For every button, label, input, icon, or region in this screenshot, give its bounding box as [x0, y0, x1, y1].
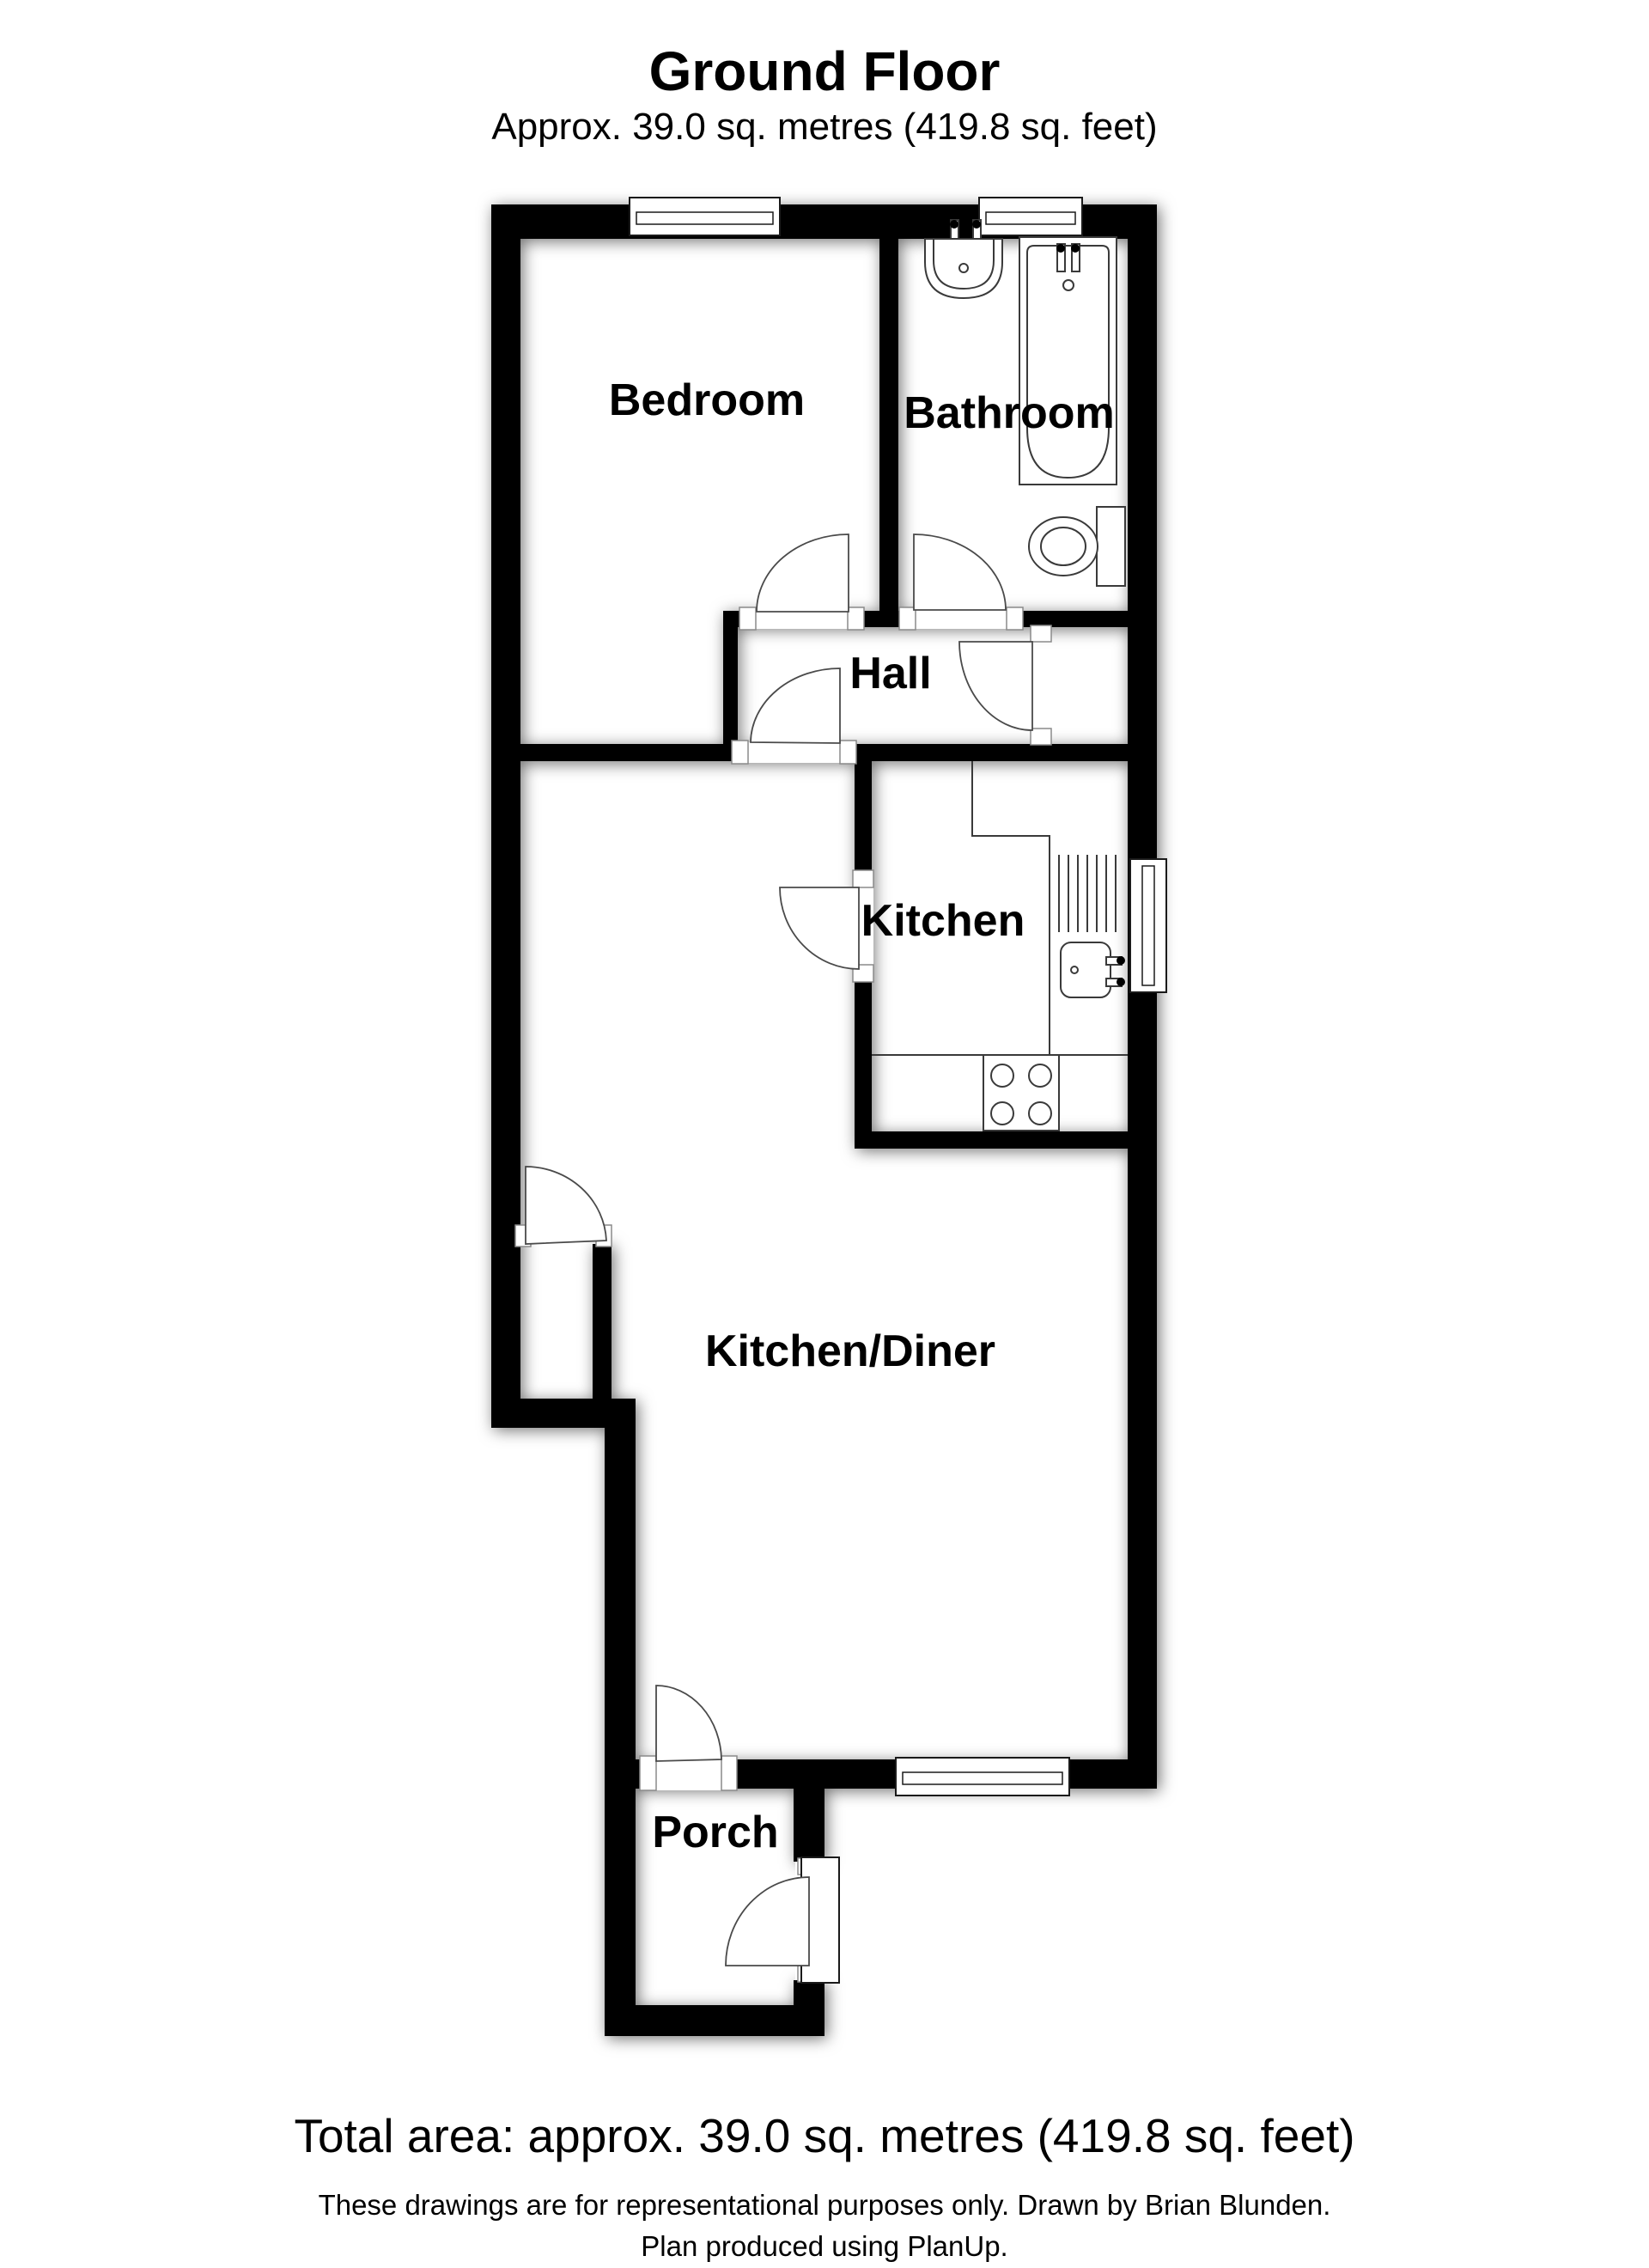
kitchen-diner-window	[896, 1758, 1069, 1795]
hall-label: Hall	[849, 649, 931, 698]
bathroom-window	[979, 198, 1082, 235]
toilet	[1029, 507, 1125, 586]
kitchen-diner-label: Kitchen/Diner	[705, 1326, 995, 1376]
alcove-cupboard-door	[526, 1167, 606, 1244]
page-subtitle: Approx. 39.0 sq. metres (419.8 sq. feet)	[491, 106, 1157, 148]
bathtub	[1019, 237, 1117, 485]
hall-to-diner-door	[751, 668, 840, 743]
kitchen-door	[780, 887, 859, 969]
hall-cupboard-door	[959, 642, 1032, 730]
floorplan-page: Ground Floor Approx. 39.0 sq. metres (41…	[0, 0, 1649, 2268]
page-title: Ground Floor	[649, 40, 1001, 102]
bedroom-label: Bedroom	[609, 375, 805, 425]
kitchen-window	[1130, 859, 1166, 992]
floorplan-drawing: Ground Floor Approx. 39.0 sq. metres (41…	[0, 0, 1649, 2268]
kitchen-label: Kitchen	[861, 896, 1025, 946]
porch-label: Porch	[652, 1808, 778, 1857]
bathroom-label: Bathroom	[904, 388, 1115, 438]
bedroom-window	[630, 198, 780, 235]
bedroom-door	[757, 534, 849, 612]
stove	[983, 1055, 1059, 1131]
total-area-text: Total area: approx. 39.0 sq. metres (419…	[294, 2109, 1354, 2162]
disclaimer-text: These drawings are for representational …	[319, 2189, 1331, 2221]
porch-inner-door	[656, 1686, 721, 1761]
produced-text: Plan produced using PlanUp.	[641, 2230, 1007, 2262]
kitchen-sink-unit	[1059, 855, 1125, 997]
front-door	[726, 1877, 809, 1966]
bathroom-door	[914, 534, 1006, 610]
